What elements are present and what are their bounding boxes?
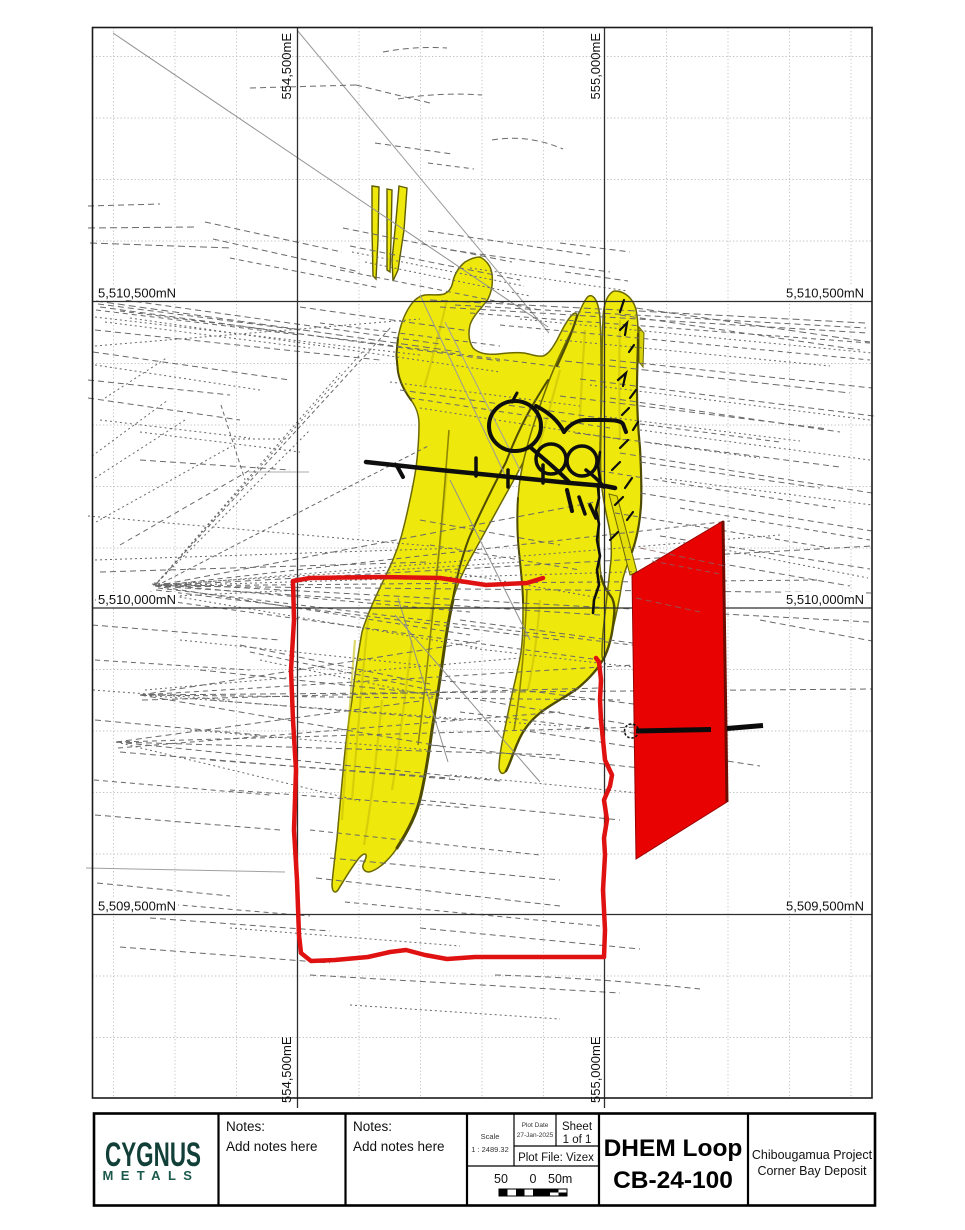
svg-text:Plot File: Vizex: Plot File: Vizex bbox=[518, 1152, 594, 1164]
svg-text:555,000mE: 555,000mE bbox=[588, 1036, 603, 1103]
svg-text:Corner Bay Deposit: Corner Bay Deposit bbox=[757, 1164, 867, 1178]
svg-text:Add notes here: Add notes here bbox=[353, 1139, 445, 1154]
svg-text:Plot Date: Plot Date bbox=[522, 1122, 549, 1129]
svg-text:DHEM Loop: DHEM Loop bbox=[604, 1135, 743, 1162]
svg-text:5,510,500mN: 5,510,500mN bbox=[786, 286, 864, 301]
svg-text:5,509,500mN: 5,509,500mN bbox=[98, 899, 176, 914]
svg-text:METALS: METALS bbox=[103, 1168, 200, 1183]
svg-text:Add notes here: Add notes here bbox=[226, 1139, 318, 1154]
svg-text:554,500mE: 554,500mE bbox=[279, 33, 294, 100]
svg-text:1 of 1: 1 of 1 bbox=[563, 1134, 592, 1146]
svg-text:5,510,000mN: 5,510,000mN bbox=[786, 592, 864, 607]
svg-text:5,510,000mN: 5,510,000mN bbox=[98, 592, 176, 607]
svg-text:5,510,500mN: 5,510,500mN bbox=[98, 286, 176, 301]
svg-text:50: 50 bbox=[494, 1172, 508, 1186]
svg-text:0: 0 bbox=[530, 1172, 537, 1186]
svg-text:Scale: Scale bbox=[481, 1132, 500, 1141]
svg-text:554,500mE: 554,500mE bbox=[279, 1036, 294, 1103]
svg-text:CB-24-100: CB-24-100 bbox=[613, 1167, 733, 1194]
svg-text:1 : 2489.32: 1 : 2489.32 bbox=[471, 1145, 509, 1154]
svg-text:27-Jan-2025: 27-Jan-2025 bbox=[517, 1132, 554, 1139]
svg-text:Sheet: Sheet bbox=[562, 1121, 593, 1133]
svg-text:Notes:: Notes: bbox=[353, 1119, 392, 1134]
svg-text:50m: 50m bbox=[548, 1172, 572, 1186]
svg-text:Chibougamua Project: Chibougamua Project bbox=[752, 1148, 873, 1162]
svg-text:555,000mE: 555,000mE bbox=[588, 33, 603, 100]
svg-text:5,509,500mN: 5,509,500mN bbox=[786, 899, 864, 914]
svg-text:Notes:: Notes: bbox=[226, 1119, 265, 1134]
